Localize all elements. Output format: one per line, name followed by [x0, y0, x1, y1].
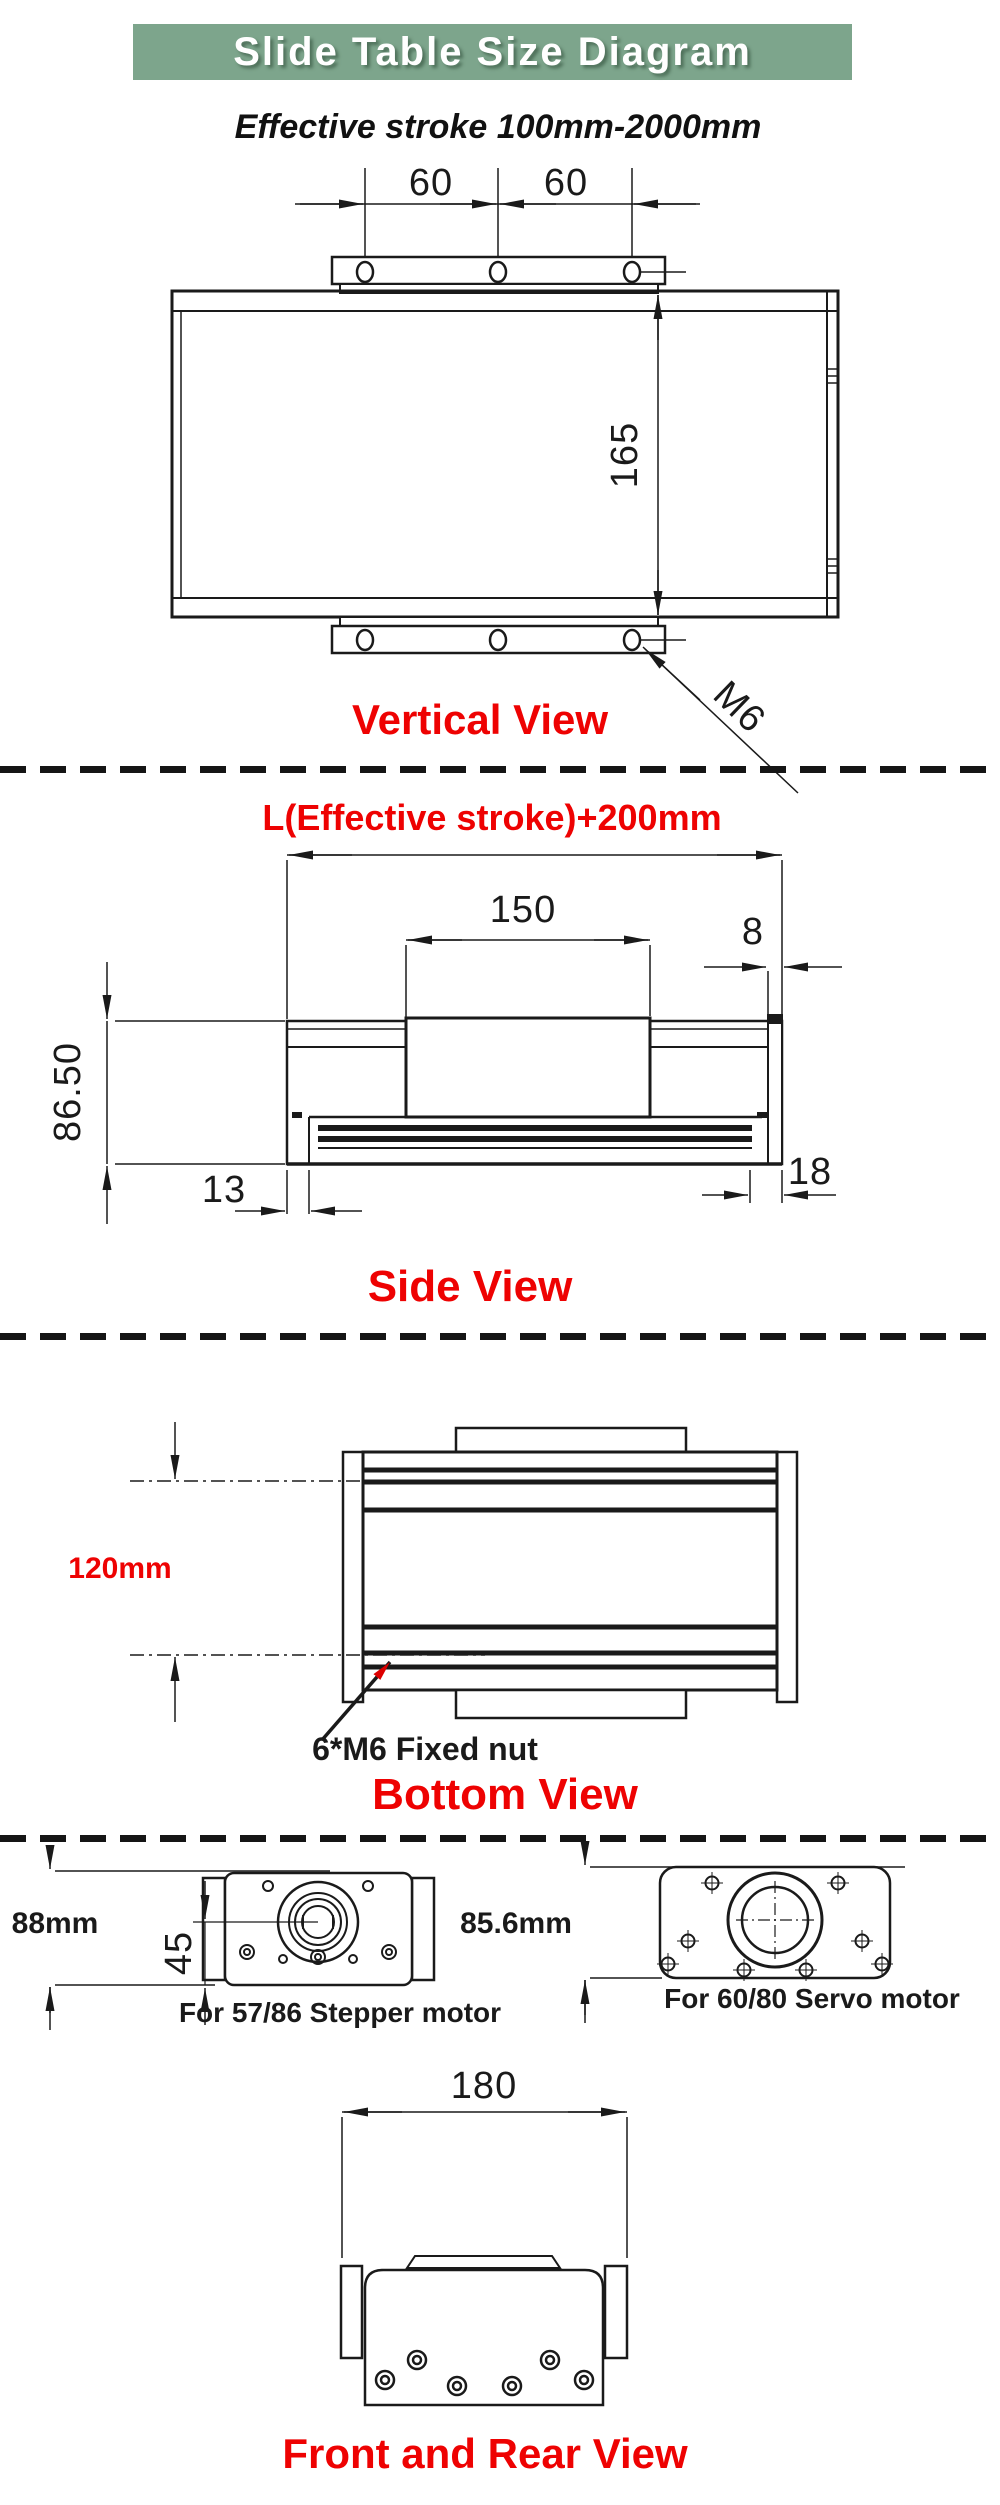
stepper-caption: For 57/86 Stepper motor: [179, 1997, 501, 2028]
vertical-bottom-mount-plate: [332, 617, 686, 653]
vertical-top-dimension-60-60: 60 60: [295, 162, 700, 270]
dim-60-left-label: 60: [409, 162, 453, 204]
front-rear-view-title: Front and Rear View: [0, 2430, 970, 2478]
dim-165-label: 165: [604, 422, 646, 488]
page: { "title": "Slide Table Size Diagram", "…: [0, 0, 1000, 2505]
stroke-range-subtitle: Effective stroke 100mm-2000mm: [0, 108, 996, 147]
dim-180-label: 180: [451, 2065, 517, 2107]
dim-60-right-label: 60: [544, 162, 588, 204]
dim-8-label: 8: [742, 911, 764, 953]
dim-120mm-label: 120mm: [68, 1552, 171, 1585]
vertical-top-mount-plate: [332, 257, 686, 293]
side-body: [287, 1015, 782, 1164]
motor-flange-drawings: 88mm 45 For 57/86 Stepper motor 85.6mm: [0, 1845, 1000, 2057]
section-divider-2: [0, 1333, 1000, 1340]
dim-88mm-label: 88mm: [12, 1907, 99, 1940]
vertical-view-drawing: 60 60 165 M6: [0, 155, 1000, 767]
dim-45-label: 45: [158, 1931, 200, 1975]
dim-length-label: L(Effective stroke)+200mm: [262, 797, 721, 838]
servo-caption: For 60/80 Servo motor: [664, 1983, 960, 2014]
dim-13-label: 13: [202, 1169, 246, 1211]
side-height-dimension-86-50: 86.50: [47, 962, 285, 1224]
side-carriage-block: [406, 1018, 650, 1117]
section-divider-1: [0, 766, 1000, 773]
vertical-height-dimension-165: 165: [604, 295, 658, 615]
dim-86-50-label: 86.50: [47, 1042, 89, 1142]
front-body: [341, 2256, 627, 2405]
side-view-drawing: L(Effective stroke)+200mm 150 8 86.50: [0, 790, 1000, 1262]
stepper-motor-view: 88mm 45 For 57/86 Stepper motor: [12, 1847, 501, 2030]
page-title: Slide Table Size Diagram: [233, 30, 752, 75]
vertical-body: [172, 291, 838, 617]
dim-85-6mm-label: 85.6mm: [460, 1907, 572, 1940]
front-rear-view-drawing: 180: [0, 2050, 1000, 2430]
title-banner: Slide Table Size Diagram: [133, 24, 852, 80]
vertical-view-title: Vertical View: [0, 696, 960, 744]
front-width-dimension-180: 180: [342, 2065, 627, 2258]
side-view-title: Side View: [0, 1262, 940, 1312]
bottom-view-title: Bottom View: [10, 1770, 1000, 1820]
side-carriage-dimension-150: 150: [406, 889, 650, 1017]
side-end-cap: [768, 1015, 782, 1164]
section-divider-3: [0, 1835, 1000, 1842]
bottom-view-drawing: 120mm 6*M6 Fixed nut: [0, 1360, 1000, 1810]
bottom-body: [343, 1428, 797, 1718]
side-left-offset-dimension-13: 13: [202, 1169, 362, 1214]
side-endcap-dimension-8: 8: [704, 911, 842, 1014]
servo-motor-view: 85.6mm For 60/80 Servo motor: [460, 1845, 960, 2023]
dim-18-label: 18: [788, 1151, 832, 1193]
dim-150-label: 150: [490, 889, 556, 931]
fixed-nut-note: 6*M6 Fixed nut: [312, 1731, 538, 1767]
